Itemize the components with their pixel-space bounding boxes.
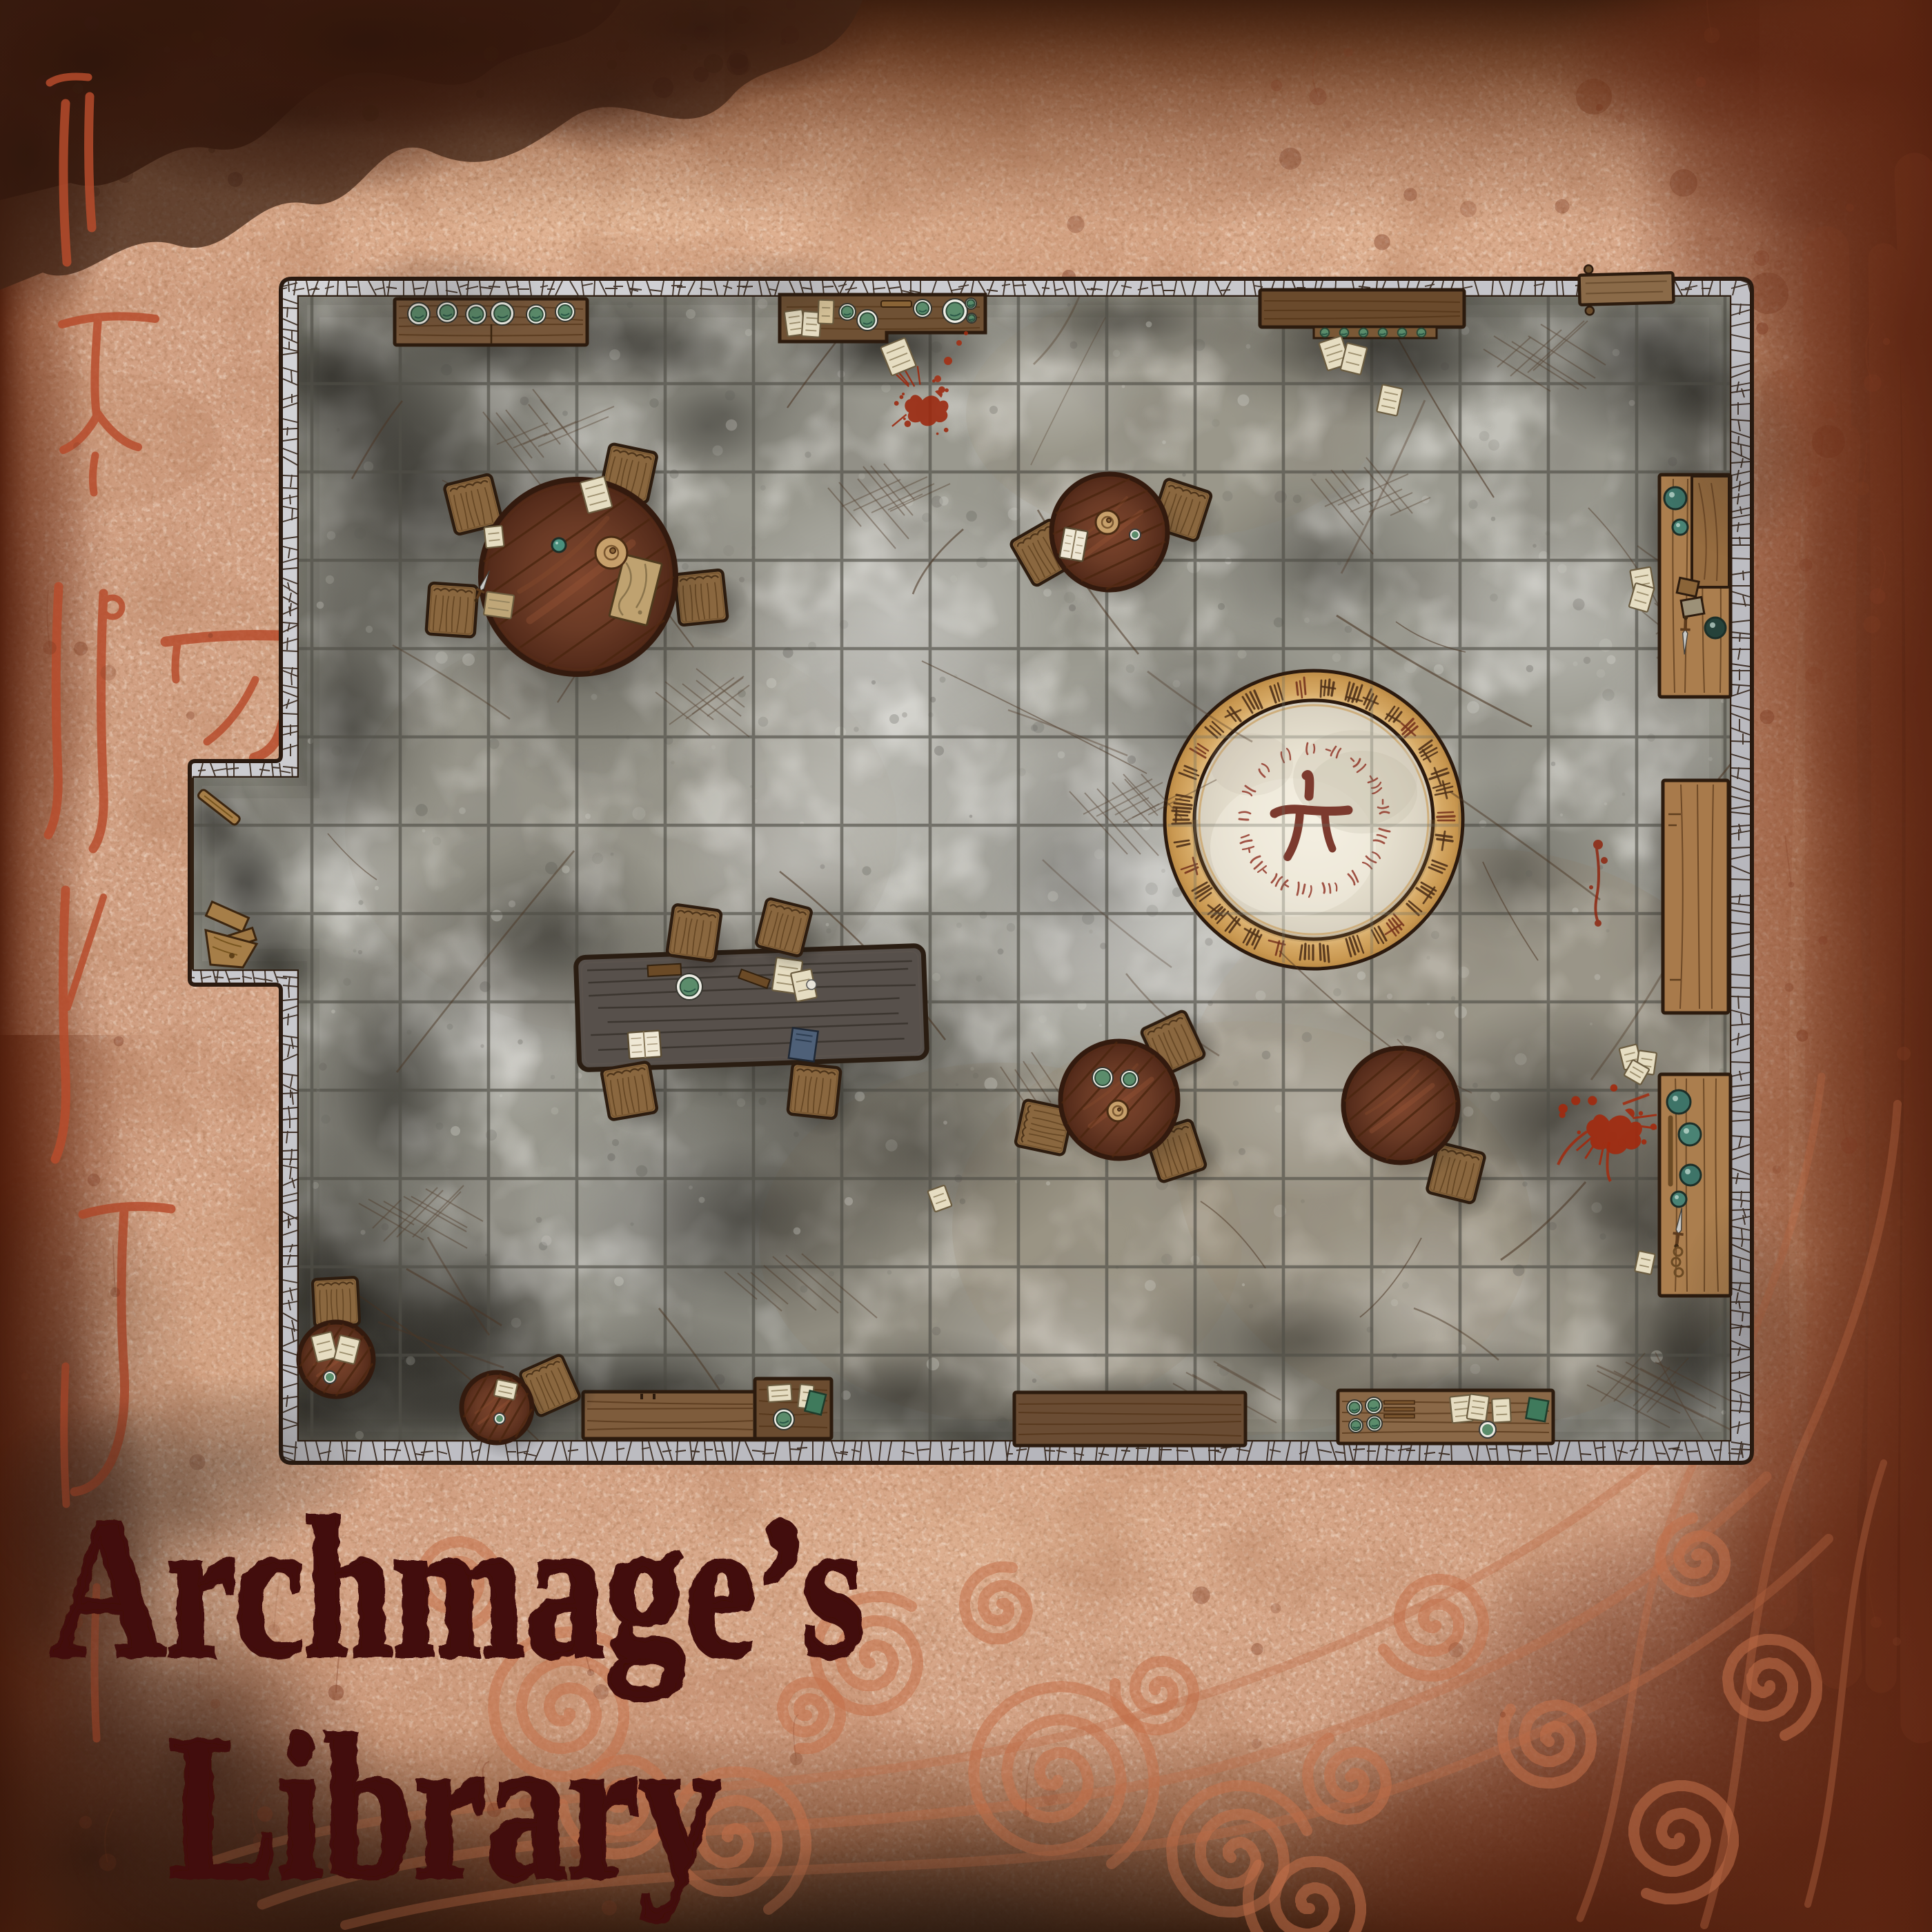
svg-text:Archmage’s: Archmage’s	[50, 1477, 865, 1702]
svg-text:Library: Library	[169, 1693, 721, 1922]
